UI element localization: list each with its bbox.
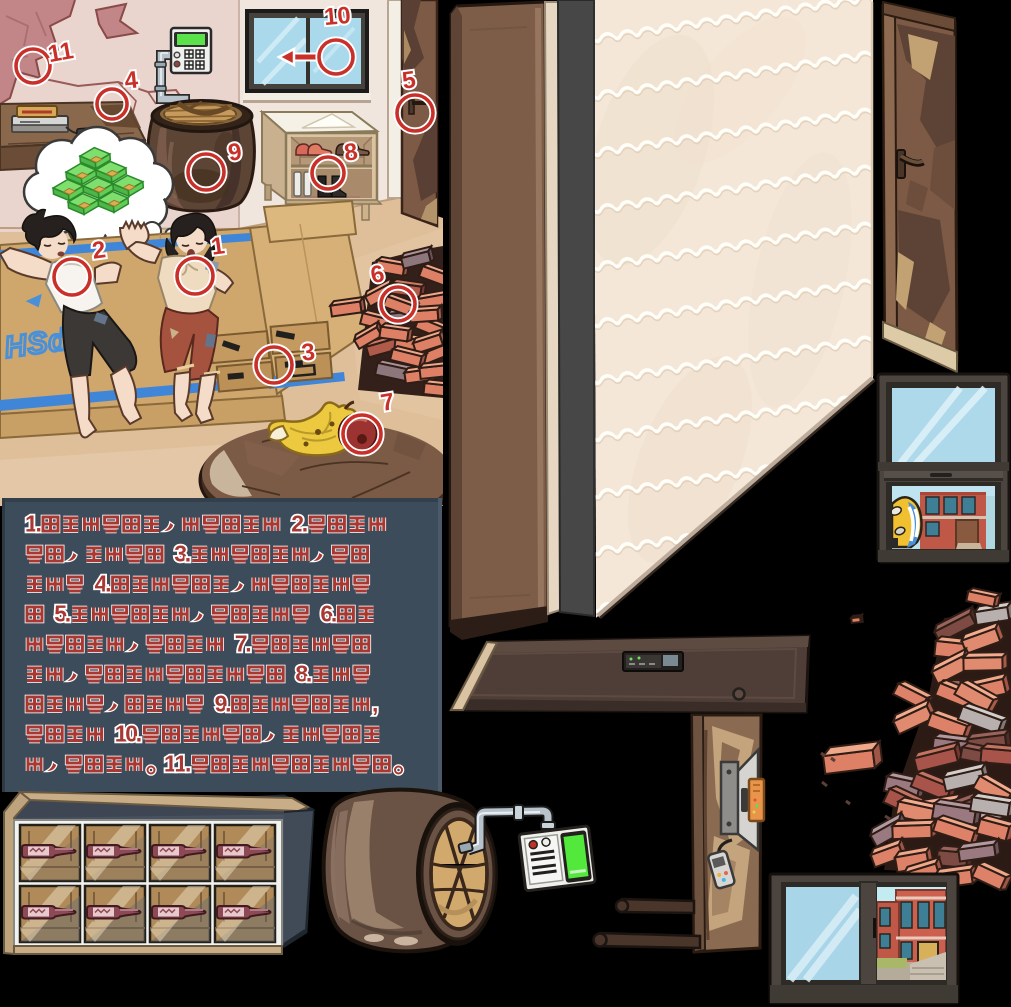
svg-text:.: . (136, 721, 142, 747)
svg-text:.: . (302, 511, 308, 537)
svg-text:.: . (185, 541, 191, 567)
svg-text:.: . (306, 661, 312, 687)
svg-text:.: . (185, 751, 191, 777)
svg-text:11: 11 (46, 37, 76, 68)
svg-text:10: 10 (323, 2, 352, 31)
svg-text:.: . (245, 631, 251, 657)
svg-text:.: . (65, 601, 71, 627)
svg-text:3: 3 (300, 338, 316, 366)
svg-text:,: , (372, 691, 378, 717)
